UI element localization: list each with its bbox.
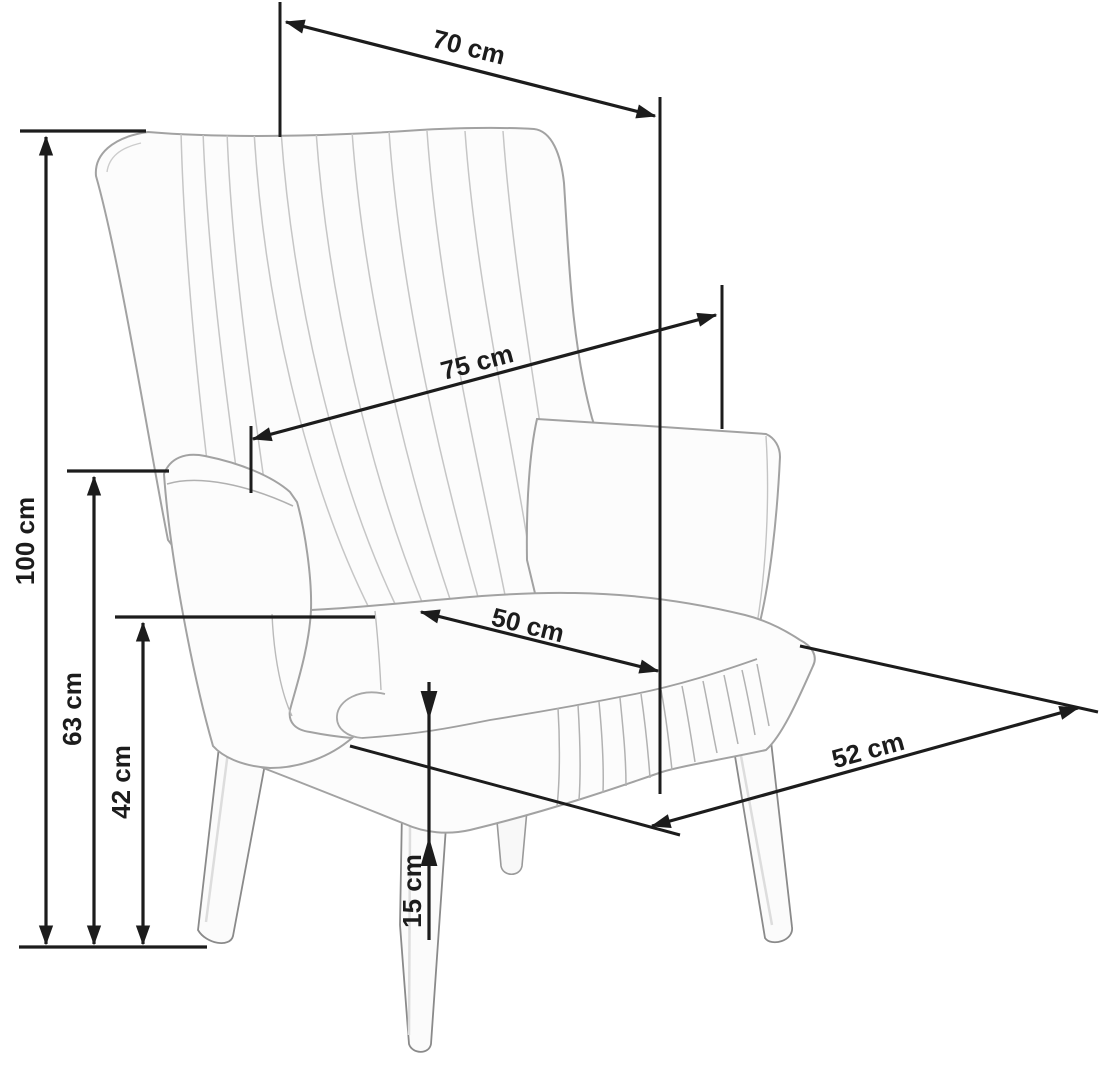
svg-text:15 cm: 15 cm [397,854,427,928]
svg-text:100 cm: 100 cm [10,497,40,585]
svg-text:42 cm: 42 cm [106,745,136,819]
svg-text:63 cm: 63 cm [57,672,87,746]
